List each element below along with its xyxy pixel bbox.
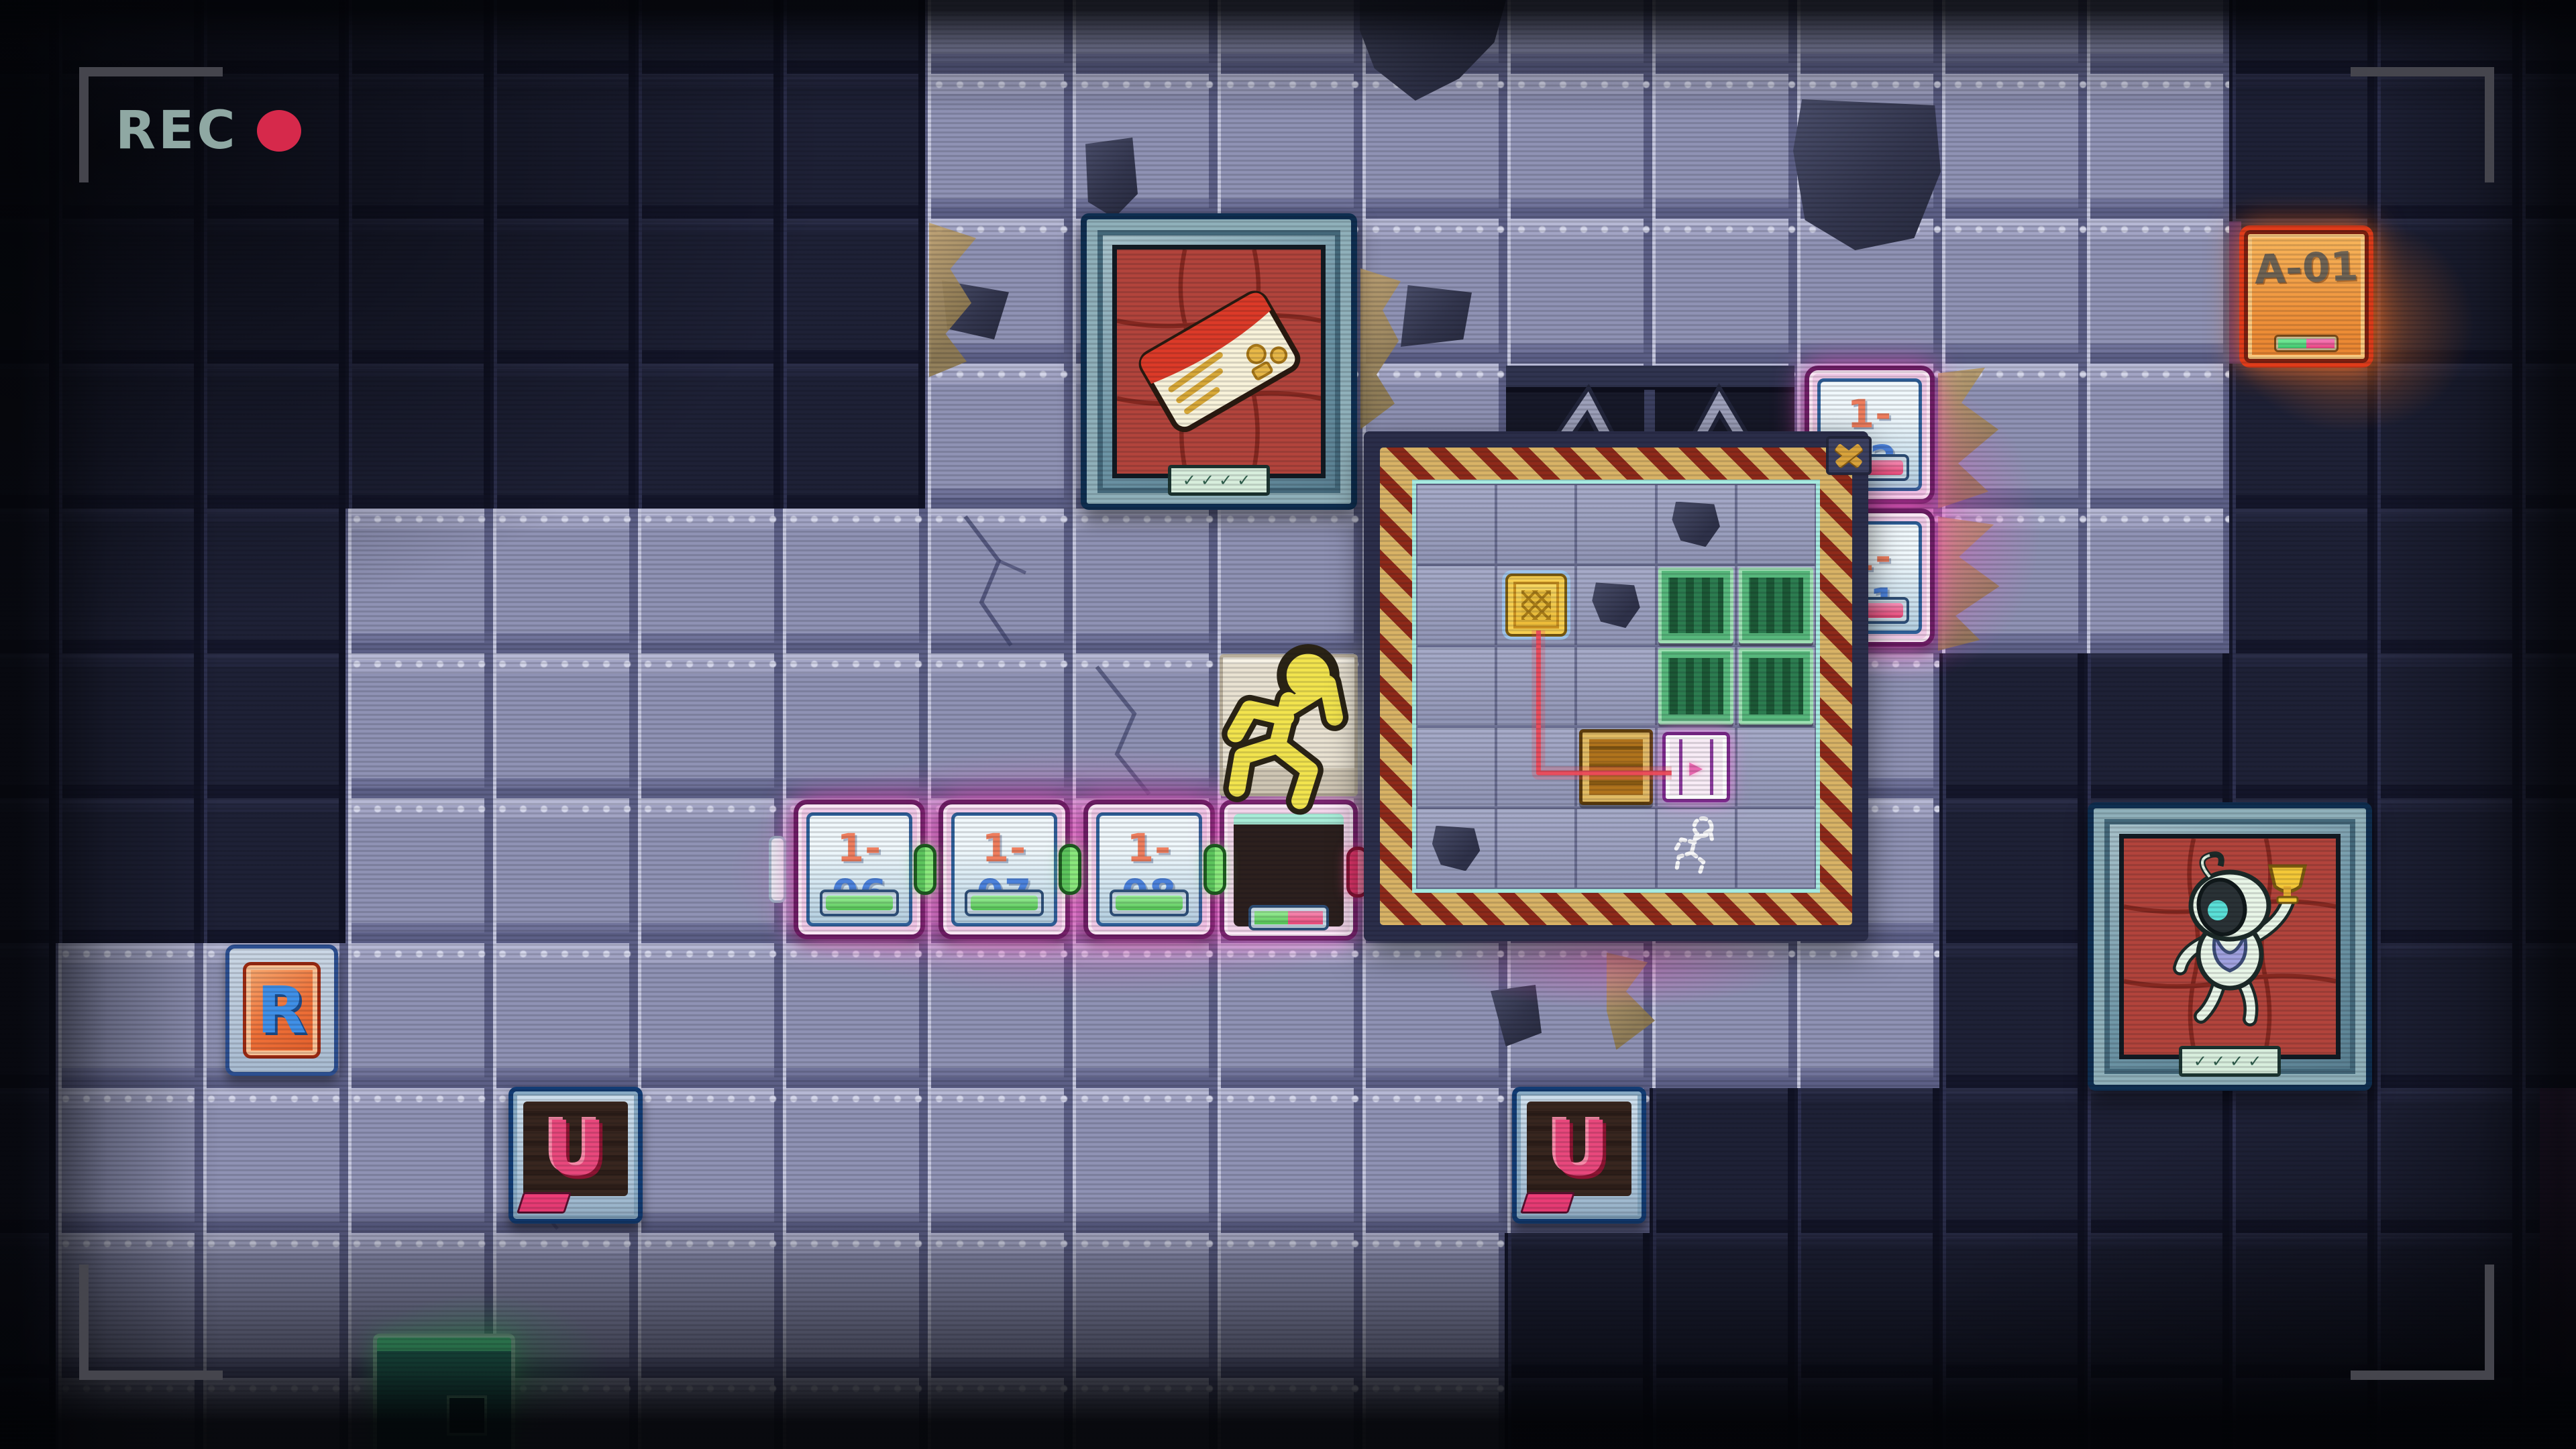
popup-cell: [1736, 727, 1816, 808]
chip-panel: 1-07: [951, 812, 1057, 926]
level-chip-1-06[interactable]: 1-06: [794, 800, 925, 939]
chip-indicator: [820, 890, 899, 916]
chip-panel: 1-06: [806, 812, 912, 926]
astronaut-trophy-icon: [2129, 842, 2330, 1043]
crate-hatch: [1521, 590, 1551, 620]
chip-indicator: [1110, 890, 1189, 916]
restart-label: R: [257, 973, 307, 1048]
popup-cell: [1416, 727, 1496, 808]
viewfinder-corner: [2351, 1265, 2494, 1380]
indicator-fill: [971, 896, 1038, 910]
chip-connector: [1203, 844, 1226, 895]
undo-tile: U: [1512, 1087, 1646, 1224]
display-backdrop: [1112, 245, 1326, 478]
debris-block-icon: [1672, 502, 1719, 547]
restart-button: R: [243, 962, 321, 1059]
wood-crate-icon: [1579, 729, 1652, 805]
popup-cell: [1496, 565, 1576, 646]
chip-panel: 1-08: [1096, 812, 1202, 926]
area-badge-indicator: [2274, 335, 2339, 352]
restart-tile: R: [225, 945, 338, 1076]
green-crate-icon: [1658, 568, 1733, 643]
green-tile: [373, 1334, 515, 1449]
area-badge[interactable]: A-01: [2239, 225, 2373, 368]
game-screen: ✓✓✓✓ A-01 1-12 1-11 1-06 1-07: [0, 0, 2576, 1449]
undo-label: U: [1549, 1106, 1610, 1193]
ghost-player-icon: [1658, 809, 1735, 888]
popup-grid: ▸: [1412, 480, 1820, 893]
popup-cell: [1416, 808, 1496, 889]
slot-indicator: [1248, 905, 1329, 930]
popup-cell: [1656, 484, 1736, 565]
green-crate-icon: [1658, 648, 1733, 724]
close-icon[interactable]: [1826, 436, 1872, 475]
display-backdrop: [2119, 834, 2341, 1059]
indicator-fill: [1116, 896, 1183, 910]
popup-cell: [1736, 808, 1816, 889]
debris-block-icon: [1432, 826, 1480, 871]
undo-badge: [1520, 1192, 1575, 1214]
level-preview-popup: ▸: [1364, 431, 1868, 941]
popup-cell: [1736, 646, 1816, 727]
debris-block-icon: [1592, 582, 1640, 628]
exit-door-icon: ▸: [1662, 732, 1730, 802]
undo-screen: U: [523, 1102, 628, 1196]
popup-cell: [1736, 484, 1816, 565]
level-chip-1-07[interactable]: 1-07: [938, 800, 1070, 939]
popup-cell: [1496, 484, 1576, 565]
rec-indicator: REC: [115, 101, 301, 161]
undo-badge: [517, 1192, 572, 1214]
viewfinder-corner: [79, 1265, 223, 1380]
green-tile-slot: [447, 1395, 487, 1436]
popup-cell: [1576, 727, 1656, 808]
undo-tile: U: [508, 1087, 643, 1224]
undo-label: U: [545, 1106, 606, 1193]
popup-cell: [1576, 646, 1656, 727]
popup-cell: [1416, 565, 1496, 646]
rec-dot-icon: [257, 110, 301, 152]
indicator-pink: [1288, 911, 1323, 924]
astronaut-trophy-display: ✓✓✓✓: [2088, 802, 2372, 1091]
chip-rail-endcap: [769, 836, 786, 903]
purple-strip: [2540, 1088, 2576, 1377]
chip-connector: [914, 844, 936, 895]
popup-cell: [1736, 565, 1816, 646]
player-runner[interactable]: [1199, 639, 1381, 826]
indicator-green: [1254, 911, 1289, 924]
explored-tile-region: [56, 1088, 1650, 1233]
display-plaque: ✓✓✓✓: [1168, 465, 1270, 496]
popup-cell: ▸: [1656, 727, 1736, 808]
explored-tile-region: [56, 1233, 1505, 1449]
keycard-display: ✓✓✓✓: [1081, 213, 1357, 510]
popup-cell: [1416, 646, 1496, 727]
popup-cell: [1496, 727, 1576, 808]
popup-cell: [1496, 646, 1576, 727]
indicator-fill: [826, 896, 893, 910]
explored-tile-region: [56, 943, 1939, 1088]
indicator-pink: [2306, 339, 2334, 348]
gold-crate-icon: [1505, 574, 1567, 636]
chip-prefix: 1-: [837, 825, 881, 871]
exit-arrow: ▸: [1689, 752, 1703, 783]
popup-cell: [1656, 565, 1736, 646]
chip-connector: [1059, 844, 1081, 895]
chip-indicator: [965, 890, 1044, 916]
popup-cell: [1416, 484, 1496, 565]
rec-label: REC: [115, 101, 238, 161]
popup-cell: [1576, 484, 1656, 565]
popup-cell: [1656, 808, 1736, 889]
level-chip-1-08[interactable]: 1-08: [1083, 800, 1215, 939]
chip-prefix: 1-: [982, 825, 1026, 871]
green-crate-icon: [1739, 648, 1814, 724]
chip-prefix: 1-: [1847, 391, 1892, 437]
undo-screen: U: [1527, 1102, 1631, 1196]
popup-cell: [1576, 808, 1656, 889]
area-badge-label: A-01: [2243, 243, 2369, 294]
popup-cell: [1576, 565, 1656, 646]
indicator-green: [2278, 339, 2306, 348]
popup-cell: [1496, 808, 1576, 889]
slate-debris: [1401, 285, 1472, 347]
display-plaque: ✓✓✓✓: [2179, 1046, 2281, 1077]
green-crate-icon: [1739, 568, 1814, 643]
viewfinder-corner: [2351, 67, 2494, 182]
chip-prefix: 1-: [1127, 825, 1171, 871]
popup-cell: [1656, 646, 1736, 727]
